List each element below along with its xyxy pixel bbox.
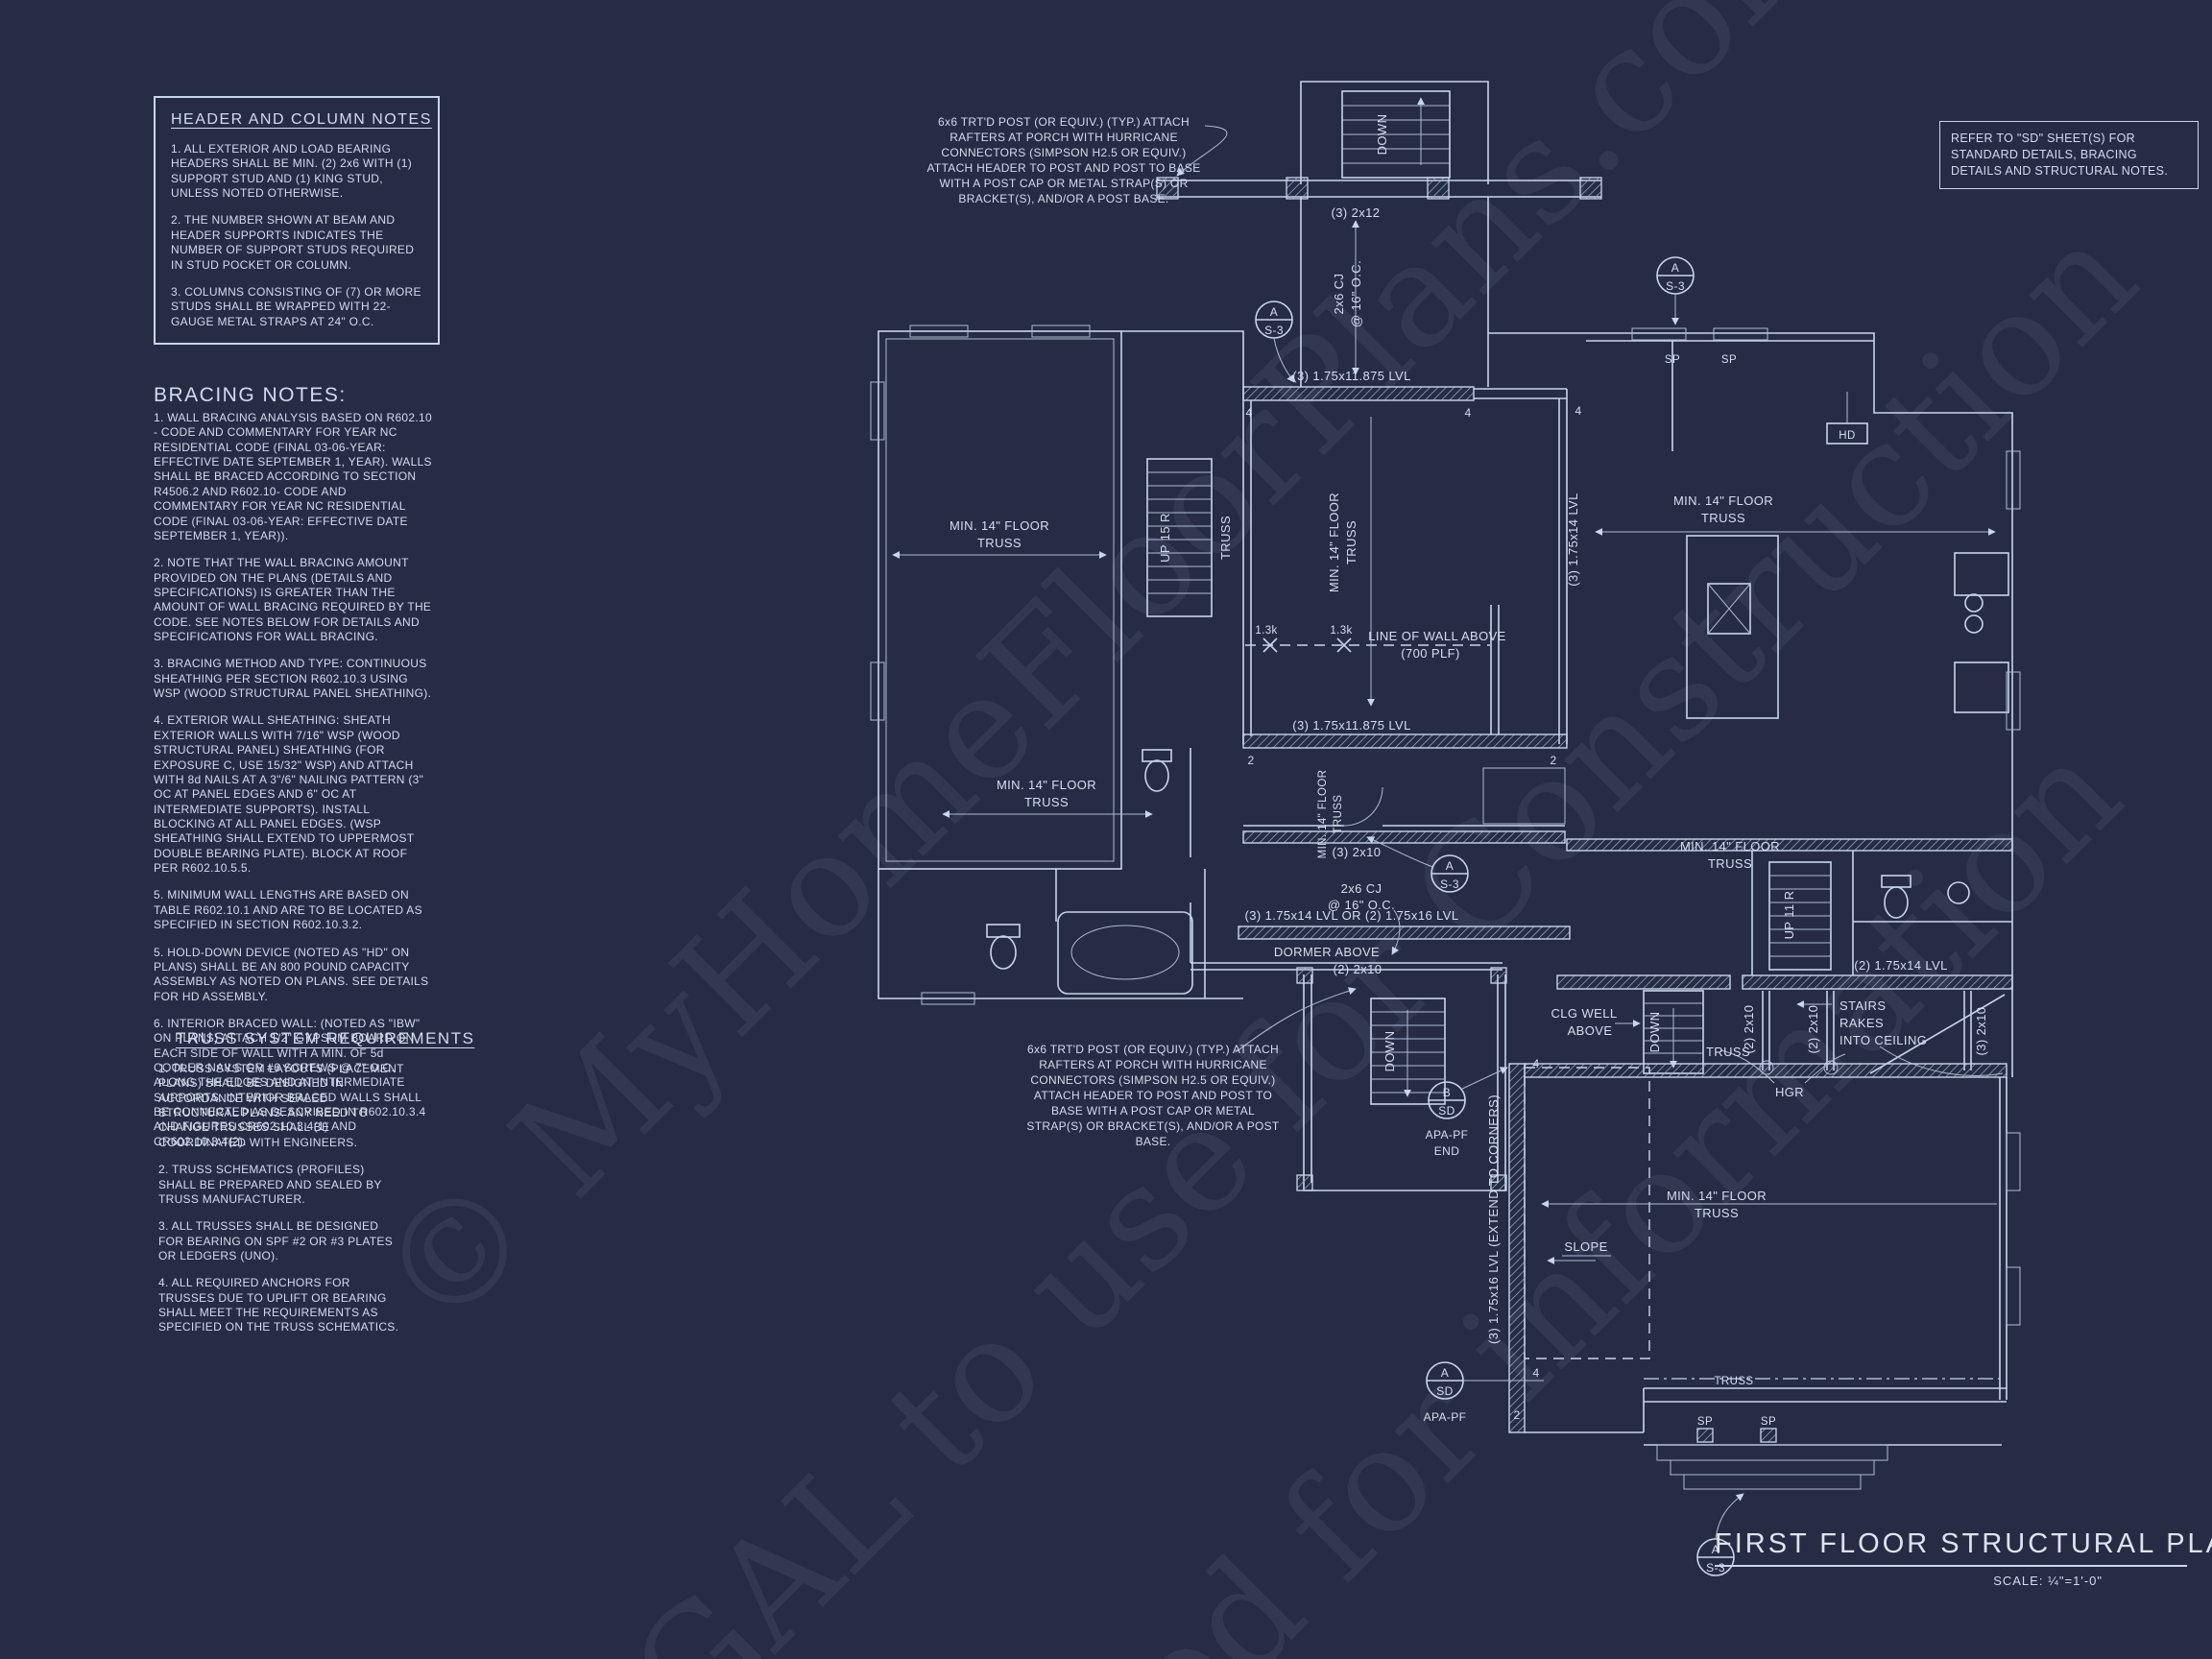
sheet-scale: SCALE: ¼"=1'-0" [1715,1574,2187,1588]
hanger-label: HGR [1775,1085,1804,1099]
truss-label: TRUSS [1715,1376,1754,1387]
lvl-options-label: (3) 1.75x14 LVL OR (2) 1.75x16 LVL [1245,908,1459,923]
section-sheet: S-3 [1440,878,1459,891]
floor-truss-label: TRUSS [1024,795,1069,809]
clg-well-label: CLG WELL [1551,1006,1618,1021]
up-15-label: UP 15 R [1158,513,1172,563]
stud-count: 2 [1247,754,1254,767]
stud-count: 4 [1245,406,1252,420]
blueprint-sheet: (3) 2x12 2x6 CJ @ 16" O.C. (3) 1.75x11.8… [0,0,2212,1659]
floor-truss-label: TRUSS [977,536,1022,550]
lvl-16-corners-label: (3) 1.75x16 LVL (EXTEND TO CORNERS) [1486,1094,1501,1344]
sd-reference-text: REFER TO "SD" SHEET(S) FOR STANDARD DETA… [1951,131,2187,180]
truss-note: 1. TRUSS SYSTEM LAYOUTS (PLACEMENT PLANS… [158,1062,404,1150]
apa-pf-end-label: END [1434,1144,1460,1158]
stud-count: 4 [1532,1366,1539,1380]
floor-truss-label-rotated: MIN. 14" FLOOR [1327,493,1341,592]
sp-label: SP [1697,1416,1713,1428]
slope-label: SLOPE [1564,1239,1607,1254]
section-letter: A [1441,1366,1449,1380]
wall-above-plf-label: (700 PLF) [1401,646,1459,661]
point-load-label: 1.3k [1255,625,1277,637]
floor-truss-label: TRUSS [1701,511,1745,525]
bracing-note: 4. EXTERIOR WALL SHEATHING: SHEATH EXTER… [154,713,434,876]
title-block: FIRST FLOOR STRUCTURAL PLAN SCALE: ¼"=1'… [1715,1528,2187,1588]
beam-2x12-label: (3) 2x12 [1332,205,1381,220]
down-label: DOWN [1375,114,1389,156]
truss-requirements-section: TRUSS SYSTEM REQUIREMENTS 1. TRUSS SYSTE… [158,1029,404,1335]
floor-truss-label: MIN. 14" FLOOR [1680,839,1780,854]
wall-above-label: LINE OF WALL ABOVE [1368,629,1506,643]
sheet-title: FIRST FLOOR STRUCTURAL PLAN [1715,1528,2187,1567]
sd-reference-note: REFER TO "SD" SHEET(S) FOR STANDARD DETA… [1939,121,2199,189]
section-letter: A [1671,261,1679,275]
floor-truss-label-rotated: TRUSS [1344,520,1358,565]
section-letter: B [1443,1086,1451,1099]
stairs-rakes-label: STAIRS [1839,998,1886,1013]
lvl-14-label: (2) 1.75x14 LVL [1854,958,1948,973]
bracing-note: 5. HOLD-DOWN DEVICE (NOTED AS "HD" ON PL… [154,946,434,1004]
lvl-beam-label: (3) 1.75x11.875 LVL [1292,369,1410,383]
section-sheet: SD [1438,1104,1455,1118]
ceiling-joist-spacing-label: @ 16" O.C. [1349,260,1363,327]
floor-truss-label-rotated: MIN. 14" FLOOR [1317,770,1329,859]
down-label: DOWN [1382,1031,1397,1072]
stud-count: 2 [1550,754,1556,767]
truss-requirements-title: TRUSS SYSTEM REQUIREMENTS [176,1029,404,1048]
header-note: 1. ALL EXTERIOR AND LOAD BEARING HEADERS… [171,142,422,201]
ceiling-joist-label: 2x6 CJ [1332,274,1346,315]
beam-2x10-label: (2) 2x10 [1806,1005,1820,1054]
floor-truss-label: MIN. 14" FLOOR [997,778,1096,792]
lvl-beam-label: (3) 1.75x11.875 LVL [1292,718,1410,733]
up-11-label: UP 11 R [1782,891,1796,940]
post-note-bottom: 6x6 TRT'D POST (OR EQUIV.) (TYP.) ATTACH… [1023,1043,1283,1150]
floor-truss-label: MIN. 14" FLOOR [950,518,1049,533]
stairs-rakes-label: RAKES [1839,1016,1884,1030]
hold-down-label: HD [1839,430,1855,442]
stairs-rakes-label: INTO CEILING [1839,1033,1927,1047]
bracing-note: 3. BRACING METHOD AND TYPE: CONTINUOUS S… [154,657,434,701]
great-room [1243,221,1567,748]
lvl-14-label: (3) 1.75x14 LVL [1566,493,1580,587]
sp-label: SP [1665,354,1680,366]
bracing-note: 5. MINIMUM WALL LENGTHS ARE BASED ON TAB… [154,888,434,932]
kitchen-wing [1567,328,2020,851]
down-label: DOWN [1647,1012,1662,1053]
truss-label: TRUSS [1706,1045,1750,1059]
stud-count: 4 [1532,1057,1539,1070]
beam-2x10-label: (3) 2x10 [1974,1007,1988,1056]
header-column-notes-title: HEADER AND COLUMN NOTES [171,111,422,129]
point-load-label: 1.3k [1330,625,1352,637]
header-note: 3. COLUMNS CONSISTING OF (7) OR MORE STU… [171,285,422,329]
apa-pf-label: APA-PF [1426,1128,1469,1142]
dormer-above-label: DORMER ABOVE [1274,945,1380,959]
section-sheet: S-3 [1264,324,1284,337]
floor-truss-label: MIN. 14" FLOOR [1667,1189,1767,1203]
truss-label: TRUSS [1218,516,1233,560]
bracing-note: 2. NOTE THAT THE WALL BRACING AMOUNT PRO… [154,556,434,644]
section-letter: A [1446,859,1454,873]
bracing-note: 1. WALL BRACING ANALYSIS BASED ON R602.1… [154,411,434,543]
clg-well-label: ABOVE [1568,1023,1613,1038]
header-note: 2. THE NUMBER SHOWN AT BEAM AND HEADER S… [171,213,422,272]
sp-label: SP [1721,354,1737,366]
floor-truss-label: TRUSS [1708,856,1752,871]
apa-pf-label: APA-PF [1424,1410,1467,1424]
stud-count: 4 [1575,404,1581,418]
floor-truss-label: TRUSS [1695,1206,1739,1220]
stud-count: 2 [1513,1408,1520,1422]
truss-note: 2. TRUSS SCHEMATICS (PROFILES) SHALL BE … [158,1163,404,1207]
truss-note: 3. ALL TRUSSES SHALL BE DESIGNED FOR BEA… [158,1219,404,1263]
floor-truss-label: MIN. 14" FLOOR [1673,493,1773,508]
beam-2x10-label: (3) 2x10 [1333,845,1382,859]
section-letter: A [1270,305,1278,319]
post-note-top: 6x6 TRT'D POST (OR EQUIV.) (TYP.) ATTACH… [925,115,1203,207]
section-sheet: SD [1436,1384,1453,1398]
section-sheet: S-3 [1666,279,1685,293]
truss-note: 4. ALL REQUIRED ANCHORS FOR TRUSSES DUE … [158,1276,404,1334]
stud-count: 4 [1464,406,1471,420]
sp-label: SP [1761,1416,1776,1428]
ceiling-joist-label: 2x6 CJ [1341,881,1382,896]
floor-truss-label-rotated: TRUSS [1333,795,1344,834]
bracing-notes-title: BRACING NOTES: [154,384,434,407]
beam-2x10-label: (2) 2x10 [1334,962,1382,976]
header-column-notes-box: HEADER AND COLUMN NOTES 1. ALL EXTERIOR … [154,96,440,345]
